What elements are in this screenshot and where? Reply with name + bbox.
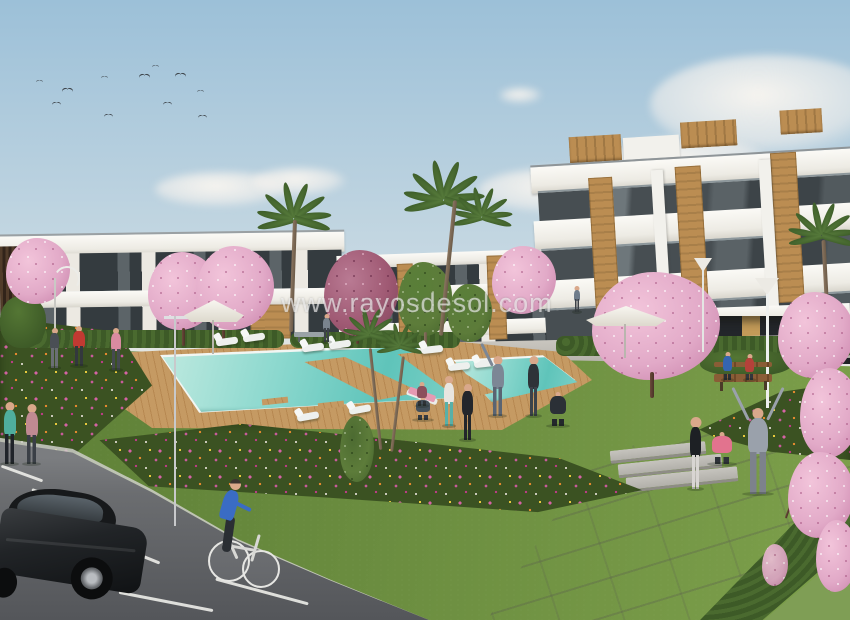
person-deckchair-sitter xyxy=(416,382,428,406)
person-torso xyxy=(550,396,566,414)
person-legs xyxy=(445,402,452,426)
foreground-blossom-4 xyxy=(816,520,850,592)
foreground-blossom-1 xyxy=(778,292,850,378)
person-legs xyxy=(715,457,729,464)
person-legs xyxy=(51,348,58,368)
building-right-roofbox2 xyxy=(680,119,737,148)
person-exerciser-dark xyxy=(527,356,540,416)
person-torso xyxy=(712,436,731,453)
person-legs xyxy=(750,452,766,494)
watermark: www.rayosdesol.com xyxy=(281,288,553,319)
person-path-sitter xyxy=(710,432,734,464)
person-jogger-teal xyxy=(2,402,17,464)
person-legs xyxy=(746,374,753,380)
bench-walkway xyxy=(294,330,324,342)
street-lamp-cone-small xyxy=(694,258,714,354)
person-legs xyxy=(575,299,580,312)
person-legs xyxy=(418,415,429,420)
person-legs xyxy=(75,346,83,366)
person-exerciser-gray xyxy=(490,356,505,416)
cone-lamp-head xyxy=(755,278,779,295)
bird-icon xyxy=(62,86,73,92)
bird-icon xyxy=(175,71,186,77)
person-torso xyxy=(528,364,538,389)
person-background-walker xyxy=(573,286,581,312)
person-torso xyxy=(26,412,38,437)
bird-icon xyxy=(152,64,158,68)
bird-icon xyxy=(104,112,113,117)
person-poolside-walker-pink xyxy=(110,328,122,370)
person-torso xyxy=(492,364,504,389)
person-torso xyxy=(723,356,732,371)
person-meditating-person xyxy=(548,392,568,426)
bench-couple-leg2 xyxy=(764,381,767,390)
curved-lamp-arc xyxy=(52,264,83,295)
bird-icon xyxy=(101,75,107,79)
bench-walkway-leg xyxy=(298,337,300,342)
bench-couple-leg1 xyxy=(720,382,723,391)
person-legs xyxy=(692,455,700,489)
bird-icon xyxy=(36,79,42,83)
building-right-roofbox3 xyxy=(779,108,822,134)
tall-lamp-crossarm xyxy=(164,316,188,319)
person-torso xyxy=(462,391,472,415)
person-exerciser-black xyxy=(461,384,474,440)
cone-lamp-small-pole xyxy=(702,270,704,352)
blossom-big-right-trunk xyxy=(650,372,654,398)
person-bench-sitter-red xyxy=(744,354,755,380)
bird-icon xyxy=(163,100,172,105)
cloud xyxy=(500,88,542,103)
person-legs xyxy=(27,435,36,464)
person-bench-sitter-blue xyxy=(722,352,733,380)
person-legs xyxy=(112,349,119,370)
person-legs xyxy=(5,434,14,464)
person-legs xyxy=(552,419,564,426)
bike-front-wheel xyxy=(242,550,280,588)
foreground-blossom-2 xyxy=(800,368,850,458)
person-torso xyxy=(444,383,454,404)
person-exerciser-white-teal xyxy=(443,376,455,426)
bush-left-corner xyxy=(0,296,46,348)
person-poolside-walker-red xyxy=(72,326,86,366)
person-legs xyxy=(493,387,502,416)
person-torso xyxy=(690,427,700,457)
bird-icon xyxy=(198,113,207,118)
bird-icon xyxy=(139,72,150,78)
bird-icon xyxy=(197,89,203,93)
person-torso xyxy=(748,418,769,454)
street-lamp-tall xyxy=(163,312,191,526)
building-right-roofbox1 xyxy=(569,134,622,163)
person-legs xyxy=(530,387,538,416)
tall-lamp-pole xyxy=(174,316,176,526)
cyclist-head xyxy=(230,479,241,490)
person-legs xyxy=(418,401,425,406)
person-legs xyxy=(724,374,731,380)
bird-icon xyxy=(52,100,61,105)
person-legs xyxy=(464,413,472,440)
person-torso xyxy=(417,386,427,398)
parasol-right-pole xyxy=(624,324,626,358)
person-torso xyxy=(4,410,16,436)
person-path-stretcher xyxy=(745,408,771,494)
parked-car xyxy=(0,481,157,620)
person-legs xyxy=(324,328,329,342)
cyclist xyxy=(200,474,280,590)
person-torso xyxy=(745,358,754,372)
person-jogger-pink xyxy=(24,404,39,464)
person-path-stander xyxy=(689,417,702,489)
architectural-render: www.rayosdesol.com xyxy=(0,0,850,620)
person-poolside-walker-dark xyxy=(49,328,60,368)
